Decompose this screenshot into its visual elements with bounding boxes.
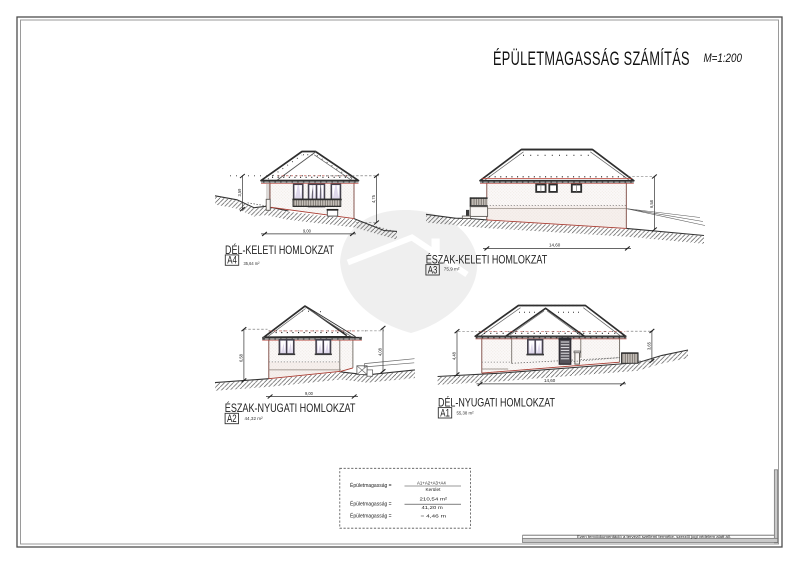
svg-text:A1+A2+A3+A4: A1+A2+A3+A4 (417, 480, 447, 486)
svg-text:4,75: 4,75 (372, 195, 377, 203)
svg-text:35,64 m²: 35,64 m² (244, 261, 261, 267)
svg-text:210,54 m²: 210,54 m² (420, 496, 449, 502)
svg-text:6,58: 6,58 (650, 200, 655, 208)
svg-text:75,9 m²: 75,9 m² (444, 266, 460, 272)
svg-text:4,08: 4,08 (378, 348, 383, 356)
svg-text:4,48: 4,48 (452, 352, 457, 360)
svg-text:A4: A4 (227, 254, 237, 267)
svg-text:M=1:200: M=1:200 (704, 52, 742, 65)
svg-text:A2: A2 (227, 413, 237, 426)
svg-text:Ezen tervdokumentáció a tervez: Ezen tervdokumentáció a tervező szellemi… (577, 535, 731, 539)
svg-text:ÉSZAK-NYUGATI HOMLOKZAT: ÉSZAK-NYUGATI HOMLOKZAT (225, 401, 356, 416)
svg-text:55,38 m²: 55,38 m² (457, 410, 475, 416)
svg-text:3,59: 3,59 (238, 189, 243, 197)
svg-text:ÉSZAK-KELETI HOMLOKZAT: ÉSZAK-KELETI HOMLOKZAT (426, 252, 548, 267)
svg-text:41,20 m: 41,20 m (422, 505, 444, 511)
svg-text:= 4,46 m: = 4,46 m (421, 513, 447, 519)
svg-text:DÉL-NYUGATI HOMLOKZAT: DÉL-NYUGATI HOMLOKZAT (438, 395, 556, 410)
svg-text:9,00: 9,00 (305, 391, 313, 396)
svg-text:14,60: 14,60 (549, 243, 560, 248)
svg-text:14,60: 14,60 (544, 379, 555, 384)
svg-text:9,00: 9,00 (303, 229, 311, 234)
svg-text:Épületmagasság =: Épületmagasság = (350, 500, 392, 507)
svg-text:Épületmagasság =: Épületmagasság = (350, 481, 392, 488)
svg-text:A1: A1 (440, 407, 450, 420)
svg-text:DÉL-KELETI HOMLOKZAT: DÉL-KELETI HOMLOKZAT (225, 243, 335, 258)
svg-text:6,58: 6,58 (239, 354, 244, 362)
svg-text:44,32 m²: 44,32 m² (245, 416, 264, 422)
svg-text:Kerület: Kerület (426, 486, 442, 492)
svg-text:Épületmagasság =: Épületmagasság = (350, 512, 392, 519)
svg-text:ÉPÜLETMAGASSÁG SZÁMÍTÁS: ÉPÜLETMAGASSÁG SZÁMÍTÁS (493, 47, 690, 70)
svg-text:3,65: 3,65 (647, 342, 652, 350)
svg-text:A3: A3 (428, 264, 438, 277)
